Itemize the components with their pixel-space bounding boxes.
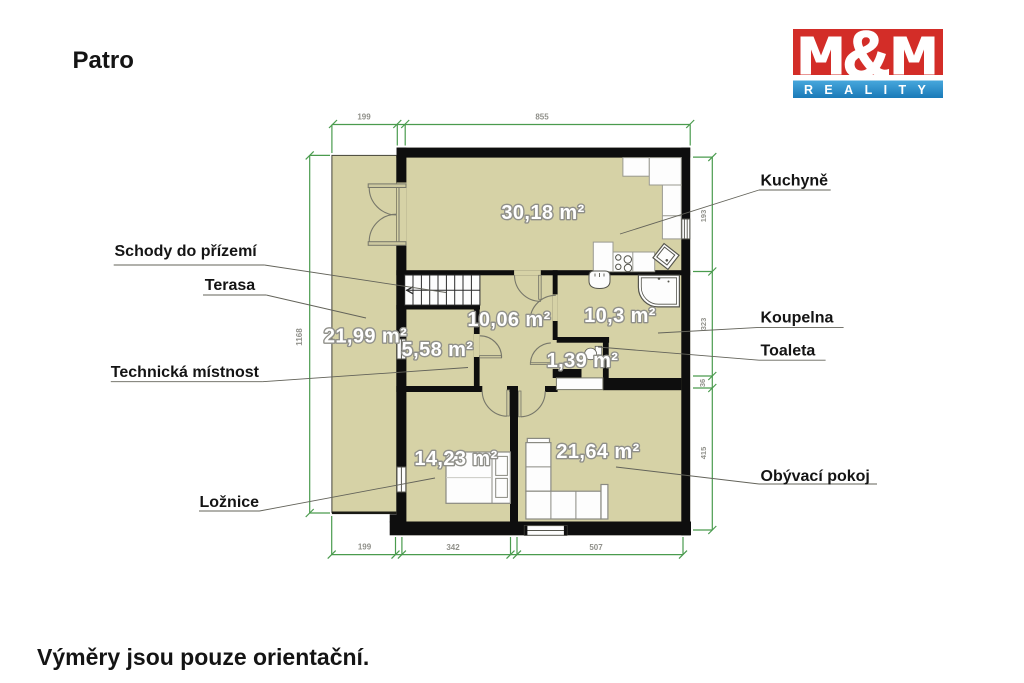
svg-text:Ložnice: Ložnice: [200, 494, 260, 511]
svg-text:Toaleta: Toaleta: [761, 343, 816, 360]
svg-text:323: 323: [699, 318, 708, 331]
svg-text:507: 507: [589, 543, 603, 552]
svg-text:21,64 m²: 21,64 m²: [556, 441, 639, 463]
svg-text:Výměry jsou pouze orientační.: Výměry jsou pouze orientační.: [37, 644, 369, 670]
svg-text:36: 36: [698, 379, 707, 387]
svg-text:REALITY: REALITY: [804, 83, 937, 97]
svg-text:1168: 1168: [295, 328, 304, 346]
svg-text:5,58 m²: 5,58 m²: [402, 339, 474, 361]
svg-text:342: 342: [446, 543, 460, 552]
svg-text:21,99 m²: 21,99 m²: [324, 326, 407, 348]
svg-text:10,3 m²: 10,3 m²: [584, 305, 656, 327]
svg-text:Kuchyně: Kuchyně: [761, 173, 829, 190]
svg-text:Koupelna: Koupelna: [761, 310, 834, 327]
svg-text:1,39 m²: 1,39 m²: [547, 350, 619, 372]
svg-text:14,23 m²: 14,23 m²: [414, 448, 497, 470]
svg-text:415: 415: [699, 447, 708, 460]
svg-text:Technická místnost: Technická místnost: [111, 364, 260, 381]
svg-text:199: 199: [357, 113, 371, 122]
svg-text:Terasa: Terasa: [205, 277, 256, 294]
svg-text:30,18 m²: 30,18 m²: [501, 202, 584, 224]
svg-text:Schody do přízemí: Schody do přízemí: [115, 243, 258, 260]
svg-text:&: &: [843, 17, 891, 91]
svg-text:855: 855: [535, 113, 549, 122]
svg-text:Obývací pokoj: Obývací pokoj: [761, 468, 870, 485]
svg-text:10,06 m²: 10,06 m²: [467, 309, 550, 331]
svg-text:199: 199: [358, 543, 372, 552]
svg-text:193: 193: [699, 210, 708, 223]
svg-text:Patro: Patro: [73, 47, 134, 74]
